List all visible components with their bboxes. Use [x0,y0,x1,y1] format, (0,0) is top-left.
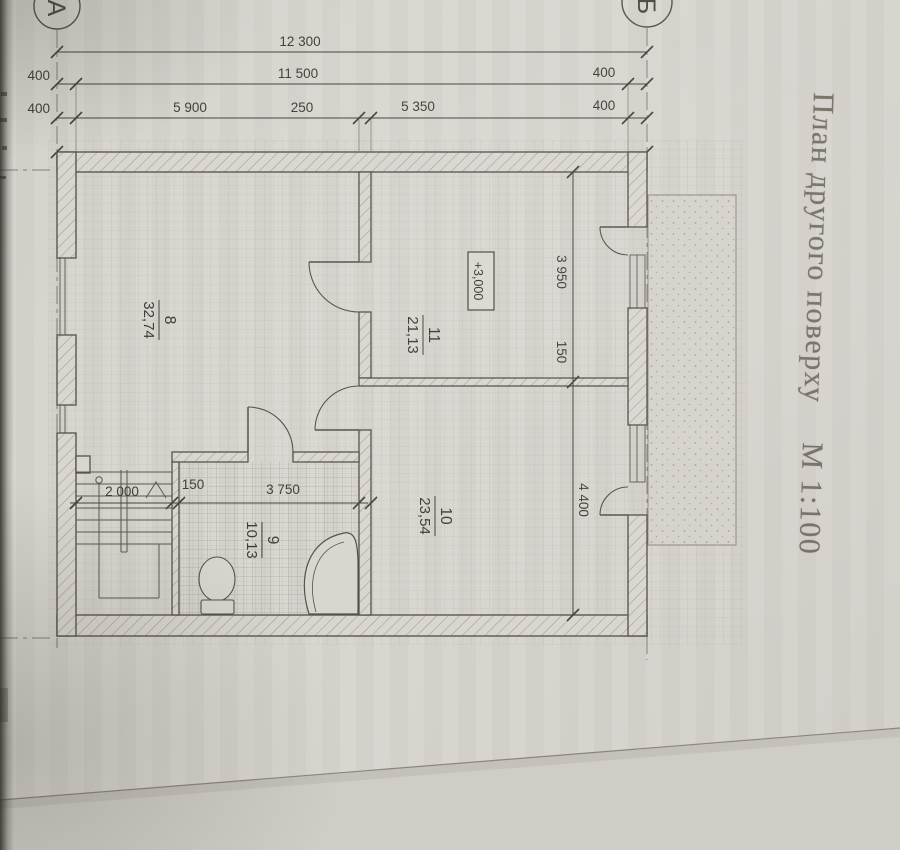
dim-vertical-bottom: 4 400 [576,483,591,517]
room-11-area: 21,13 [404,316,421,354]
dim-row2-right: 400 [593,65,616,80]
door-room10-terrace [600,487,628,515]
title-scale: М 1:100 [791,442,829,556]
dim-row2-left: 400 [27,68,50,83]
dim-lower-stairs: 2 000 [105,484,139,499]
dim-lower-wall: 150 [182,477,205,492]
dim-overall: 12 300 [279,34,320,49]
terrace [648,195,736,545]
dim-vertical-middle: 150 [554,341,569,364]
elevation-value: +3,000 [471,262,485,301]
axis-label-b: Б [632,0,660,14]
photographed-floor-plan-sheet: А Б 12 300 400 11 500 [0,0,900,850]
dim-row3-right: 400 [593,98,616,113]
room-9-number: 9 [264,536,281,545]
room-10-area: 23,54 [416,497,433,535]
floor-plan-drawing: А Б 12 300 400 11 500 [0,0,900,850]
dim-row2-middle: 11 500 [278,66,318,81]
window-left-1 [57,258,76,335]
room-8-area: 32,74 [140,301,157,339]
dim-row3-d3: 5 350 [401,99,435,114]
sheet-edge [0,728,900,850]
dim-row3-left: 400 [27,101,50,116]
room-10-number: 10 [437,507,454,525]
door-room8-room11 [309,262,359,312]
window-right-room10 [630,425,645,482]
dim-row3-d2: 250 [291,100,314,115]
photo-edge-marks [0,92,8,722]
elevation-mark: +3,000 [468,252,494,310]
room-10-label: 10 23,54 [416,496,454,536]
room-8-label: 8 32,74 [140,300,178,340]
dimension-ticks [51,46,653,158]
dim-vertical-top: 3 950 [554,255,569,289]
dimension-lines-top [57,52,647,118]
window-right-room11 [630,255,645,308]
dim-row3-d1: 5 900 [173,100,207,115]
door-room8-bathroom [248,407,293,452]
door-room8-room10 [315,386,359,430]
room-9-area: 10,13 [243,521,260,559]
room-11-number: 11 [425,327,442,343]
stair-direction-start-icon [96,477,102,483]
window-left-2 [57,405,76,433]
toilet-icon [199,557,235,614]
grid-axis-bubble-a: А [34,0,80,29]
grid-axis-bubble-b: Б [622,0,672,27]
room-11-label: 11 21,13 [404,315,442,355]
axis-label-a: А [42,0,70,17]
room-8-number: 8 [161,316,178,325]
dim-lower-bathroom: 3 750 [266,482,300,497]
dimension-line-vertical: 3 950 150 4 400 [554,166,591,621]
door-room11-terrace [600,227,628,255]
